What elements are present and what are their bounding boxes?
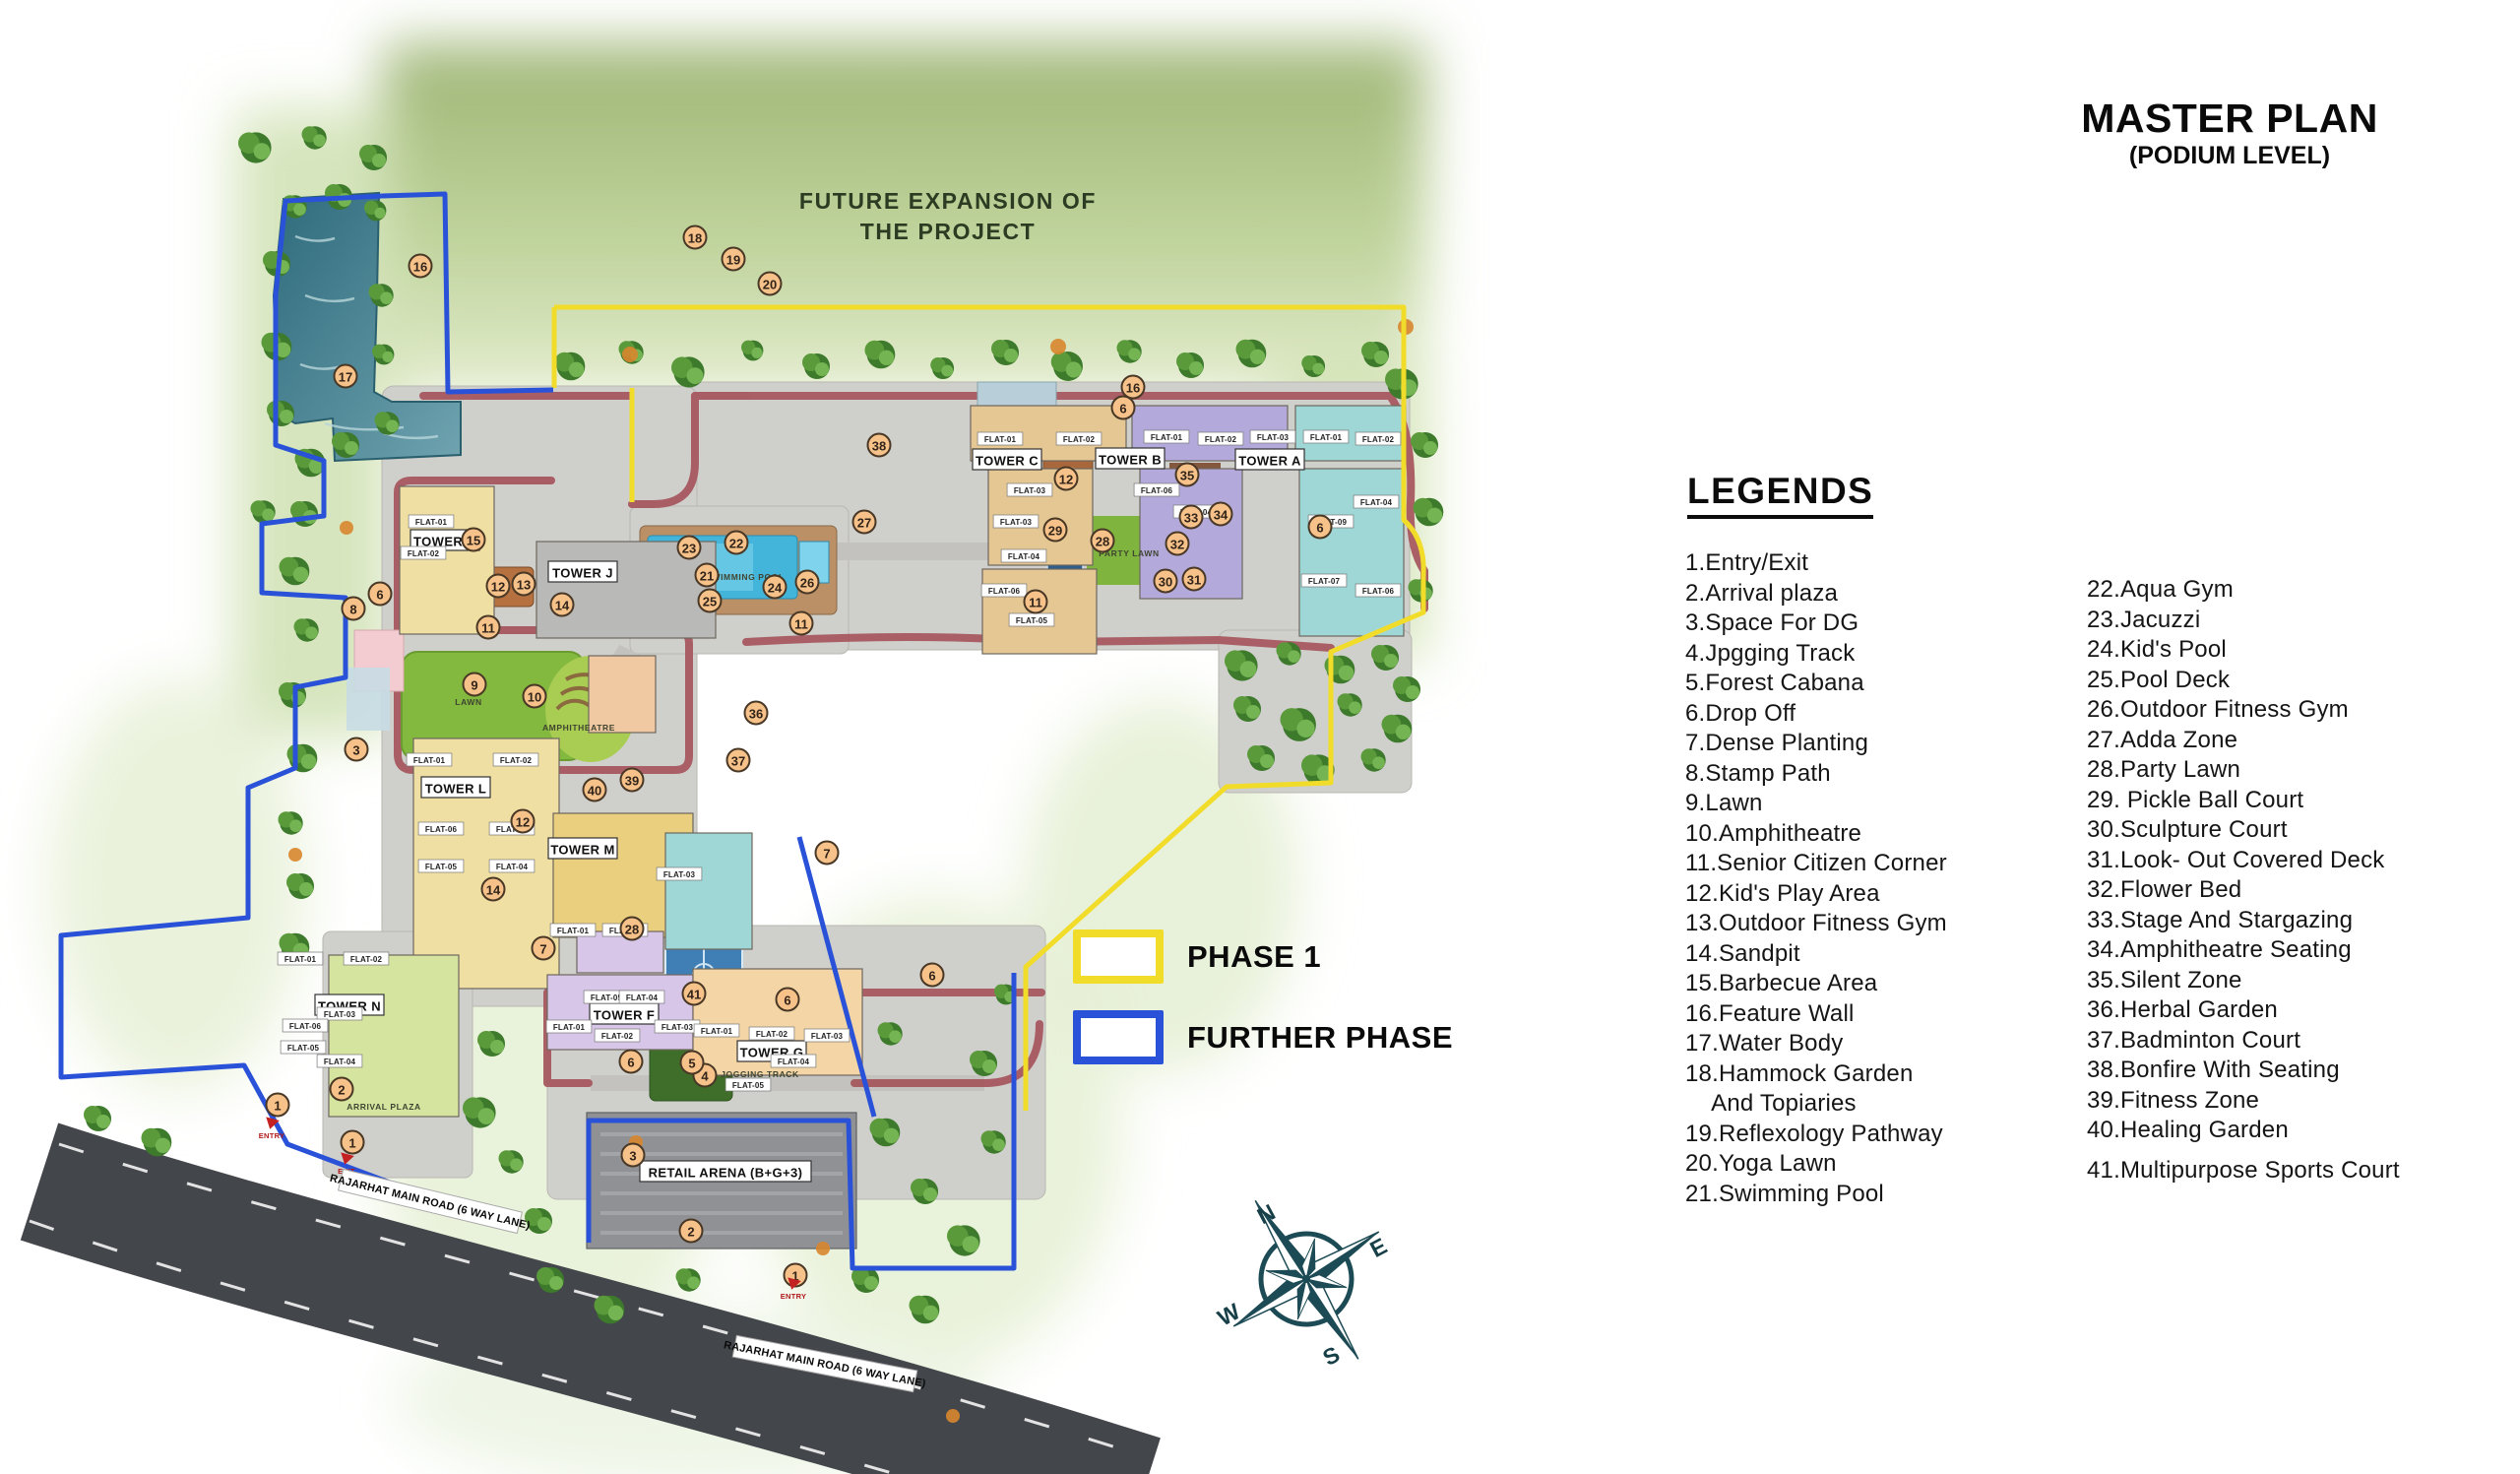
flat-label: FLAT-02	[344, 952, 389, 965]
flat-label: FLAT-02	[1355, 432, 1401, 445]
legend-item: 24.Kid's Pool	[2087, 635, 2520, 666]
tower-building	[589, 656, 656, 733]
legend-item: 31.Look- Out Covered Deck	[2087, 846, 2520, 876]
flat-label-text: FLAT-02	[1063, 435, 1096, 444]
map-marker: 38	[868, 434, 891, 457]
map-marker-number: 12	[516, 815, 530, 830]
flat-label: FLAT-04	[771, 1055, 816, 1067]
map-marker-number: 3	[352, 743, 359, 758]
map-marker-number: 6	[376, 588, 383, 603]
flat-label-text: FLAT-01	[415, 518, 448, 527]
map-marker-number: 9	[471, 678, 477, 693]
map-marker-number: 34	[1214, 508, 1228, 523]
map-marker: 20	[759, 273, 782, 295]
legend-item: 21.Swimming Pool	[1685, 1180, 2099, 1210]
map-marker-number: 27	[857, 516, 871, 531]
entry-exit-label: ENTRY	[259, 1131, 285, 1140]
flat-label-text: FLAT-02	[1362, 435, 1395, 444]
flat-label-text: FLAT-03	[663, 870, 696, 879]
legend-item: 1.Entry/Exit	[1685, 548, 2099, 579]
map-marker-number: 6	[1316, 521, 1323, 536]
entry-exit-label: ENTRY	[781, 1292, 807, 1301]
flat-label-text: FLAT-03	[811, 1032, 844, 1041]
flat-label-text: FLAT-04	[1008, 552, 1040, 561]
map-marker-number: 28	[625, 923, 639, 937]
map-marker: 10	[524, 685, 546, 708]
legend-item: 41.Multipurpose Sports Court	[2087, 1156, 2520, 1186]
compass-letter: E	[1365, 1233, 1391, 1262]
legend-item: 33.Stage And Stargazing	[2087, 906, 2520, 936]
map-marker: 31	[1183, 568, 1206, 591]
legend-item: 2.Arrival plaza	[1685, 579, 2099, 609]
legend-item: 16.Feature Wall	[1685, 999, 2099, 1030]
tower-label-text: TOWER B	[1099, 453, 1162, 468]
legend-item: 28.Party Lawn	[2087, 755, 2520, 786]
seating-area	[346, 668, 390, 731]
map-marker: 19	[723, 248, 745, 271]
map-marker-number: 8	[349, 603, 356, 617]
phase-legend-row: PHASE 1	[1073, 929, 1453, 984]
flat-label: FLAT-01	[407, 753, 452, 766]
legend-item: 5.Forest Cabana	[1685, 669, 2099, 699]
flat-label-text: FLAT-01	[701, 1027, 733, 1036]
flat-label-text: FLAT-01	[1151, 433, 1183, 442]
flat-label-text: FLAT-06	[1141, 486, 1173, 495]
map-marker-number: 3	[629, 1149, 636, 1164]
flat-label-text: FLAT-01	[557, 927, 590, 935]
map-marker-number: 23	[682, 542, 696, 556]
map-marker-number: 7	[539, 942, 546, 957]
legend-item: 17.Water Body	[1685, 1029, 2099, 1059]
legend-item: 32.Flower Bed	[2087, 875, 2520, 906]
flat-label-text: FLAT-01	[553, 1023, 586, 1032]
flat-label-text: FLAT-06	[289, 1022, 322, 1031]
flat-label-text: FLAT-05	[591, 993, 623, 1002]
flat-label: FLAT-07	[1301, 574, 1347, 587]
legend-item: 9.Lawn	[1685, 789, 2099, 819]
map-marker-number: 31	[1187, 573, 1201, 588]
map-marker: 39	[621, 769, 644, 792]
phase-color-box	[1073, 929, 1164, 984]
map-marker-number: 40	[588, 784, 601, 799]
legend-item: 35.Silent Zone	[2087, 966, 2520, 996]
legend-column-2: 22.Aqua Gym23.Jacuzzi24.Kid's Pool25.Poo…	[2087, 575, 2520, 1186]
map-marker: 24	[764, 576, 787, 599]
map-marker: 1	[267, 1094, 289, 1117]
flat-label: FLAT-03	[1250, 430, 1295, 443]
flat-label: FLAT-04	[317, 1055, 362, 1067]
tower-label: TOWER B	[1096, 448, 1165, 469]
map-marker: 11	[1025, 591, 1047, 613]
tower-label: TOWER J	[548, 561, 617, 582]
flat-label-text: FLAT-03	[1257, 433, 1290, 442]
map-marker: 2	[331, 1078, 353, 1101]
map-marker-number: 25	[703, 595, 717, 609]
map-marker: 34	[1210, 503, 1232, 526]
map-marker: 35	[1176, 464, 1199, 486]
map-marker: 6	[921, 964, 944, 987]
legend-item: 20.Yoga Lawn	[1685, 1149, 2099, 1180]
map-marker: 22	[725, 532, 748, 554]
flat-label: FLAT-04	[1354, 495, 1399, 508]
flat-label: FLAT-02	[493, 753, 538, 766]
map-marker-number: 32	[1170, 538, 1184, 552]
legend-item: 18.Hammock Garden	[1685, 1059, 2099, 1090]
map-marker-number: 11	[1029, 596, 1042, 610]
map-marker: 29	[1044, 519, 1067, 542]
flat-label: FLAT-05	[1009, 613, 1054, 626]
map-marker-number: 7	[823, 847, 830, 862]
map-marker: 33	[1180, 506, 1203, 529]
flat-label-text: FLAT-02	[601, 1032, 634, 1041]
legend-item: 12.Kid's Play Area	[1685, 879, 2099, 910]
flat-label: FLAT-03	[1007, 483, 1052, 496]
map-marker: 13	[513, 573, 535, 596]
map-marker: 14	[551, 594, 574, 616]
map-marker: 12	[512, 810, 535, 833]
map-marker: 7	[816, 842, 839, 865]
amenity-label: JOGGING TRACK	[721, 1069, 799, 1079]
map-marker: 3	[622, 1144, 645, 1167]
map-marker: 7	[533, 937, 555, 960]
map-marker-number: 12	[1059, 473, 1073, 487]
map-marker-number: 26	[800, 576, 814, 591]
flat-label-text: FLAT-05	[425, 863, 458, 871]
flat-label: FLAT-01	[1303, 430, 1349, 443]
flat-label: FLAT-01	[278, 952, 323, 965]
flat-label-text: FLAT-03	[1000, 518, 1033, 527]
flat-label: FLAT-05	[281, 1041, 326, 1054]
flat-label: FLAT-03	[657, 867, 702, 880]
legend-item: 30.Sculpture Court	[2087, 815, 2520, 846]
flat-label-text: FLAT-01	[1310, 433, 1343, 442]
flat-label-text: FLAT-05	[1016, 616, 1048, 625]
page-title-main: MASTER PLAN	[2067, 96, 2392, 140]
map-marker-number: 13	[517, 578, 531, 593]
map-marker-number: 21	[700, 569, 714, 584]
flat-label-text: FLAT-02	[756, 1030, 788, 1039]
map-marker: 16	[1122, 376, 1145, 399]
map-marker-number: 17	[339, 370, 352, 385]
map-marker: 36	[745, 702, 768, 725]
legend-item: 38.Bonfire With Seating	[2087, 1056, 2520, 1086]
tower-label-text: TOWER J	[552, 566, 613, 581]
legend-column-1: 1.Entry/Exit2.Arrival plaza3.Space For D…	[1685, 548, 2099, 1209]
legend-item: 26.Outdoor Fitness Gym	[2087, 695, 2520, 726]
map-marker-number: 41	[687, 988, 701, 1002]
legend-item: 25.Pool Deck	[2087, 666, 2520, 696]
map-marker: 21	[696, 564, 719, 587]
master-plan-page: { "page": { "title_line1": "MASTER PLAN"…	[0, 0, 2520, 1474]
map-marker-number: 28	[1096, 535, 1109, 549]
map-marker-number: 6	[1119, 402, 1126, 417]
map-marker-number: 39	[625, 774, 639, 789]
amenity-label: AMPHITHEATRE	[542, 723, 615, 733]
amenity-label: ARRIVAL PLAZA	[346, 1102, 421, 1112]
flat-label: FLAT-01	[550, 924, 596, 936]
flat-label-text: FLAT-03	[661, 1023, 694, 1032]
map-marker-number: 6	[627, 1056, 634, 1070]
map-marker: 6	[369, 583, 392, 606]
flat-label-text: FLAT-04	[324, 1057, 356, 1066]
flat-label: FLAT-03	[317, 1007, 362, 1020]
flat-label: FLAT-04	[619, 991, 664, 1003]
map-marker-number: 16	[1126, 381, 1140, 396]
map-marker: 6	[1112, 397, 1135, 419]
map-marker: 8	[343, 598, 365, 620]
phase-label: FURTHER PHASE	[1187, 1020, 1453, 1056]
tower-label: TOWER C	[973, 449, 1041, 470]
map-marker-number: 6	[928, 969, 935, 984]
map-marker-number: 20	[763, 278, 777, 292]
legend-item: 34.Amphitheatre Seating	[2087, 935, 2520, 966]
map-marker-number: 33	[1184, 511, 1198, 526]
flat-label: FLAT-01	[546, 1020, 592, 1033]
flat-label-text: FLAT-02	[500, 756, 533, 765]
map-marker-number: 5	[688, 1057, 695, 1071]
map-marker: 6	[777, 989, 799, 1011]
map-marker: 40	[584, 779, 606, 801]
map-marker: 15	[463, 529, 485, 551]
map-marker-number: 11	[481, 621, 495, 636]
legend-item: 27.Adda Zone	[2087, 726, 2520, 756]
feature-wall	[977, 382, 1056, 406]
flat-label: FLAT-05	[418, 860, 464, 872]
map-marker: 28	[1092, 530, 1114, 552]
flat-label-text: FLAT-02	[1205, 435, 1237, 444]
map-marker: 18	[684, 226, 707, 249]
legend-item: 14.Sandpit	[1685, 939, 2099, 970]
map-marker-number: 2	[687, 1225, 694, 1240]
phase-legend-row: FURTHER PHASE	[1073, 1010, 1453, 1064]
tower-label-text: TOWER A	[1238, 454, 1301, 469]
flat-label: FLAT-01	[977, 432, 1023, 445]
tower-label-text: TOWER L	[425, 782, 487, 797]
map-marker: 14	[482, 878, 505, 901]
flat-label-text: FLAT-06	[425, 825, 458, 834]
map-marker: 32	[1166, 533, 1189, 555]
legend-item: 15.Barbecue Area	[1685, 969, 2099, 999]
map-marker-number: 1	[348, 1136, 355, 1151]
legend-item: 6.Drop Off	[1685, 699, 2099, 730]
map-marker: 12	[487, 575, 510, 598]
map-marker: 30	[1155, 570, 1177, 593]
compass-letter: W	[1214, 1298, 1245, 1330]
flat-label: FLAT-06	[1134, 483, 1179, 496]
map-marker: 37	[727, 749, 750, 772]
legend-item: 37.Badminton Court	[2087, 1026, 2520, 1057]
tower-label-text: TOWER F	[594, 1008, 656, 1023]
map-marker-number: 1	[274, 1099, 281, 1114]
flat-label-text: FLAT-04	[626, 993, 659, 1002]
phase-color-box	[1073, 1010, 1164, 1064]
tower-label-text: TOWER M	[550, 843, 614, 858]
tower-e-building	[665, 833, 752, 949]
map-marker: 17	[335, 365, 357, 388]
map-marker-number: 11	[794, 617, 808, 632]
flat-label-text: FLAT-05	[287, 1044, 320, 1053]
legend-item: 39.Fitness Zone	[2087, 1086, 2520, 1117]
map-marker: 3	[346, 738, 368, 761]
map-marker: 12	[1055, 468, 1078, 490]
map-marker: 16	[409, 255, 432, 278]
tower-label: TOWER F	[590, 1003, 659, 1024]
map-marker: 6	[1309, 516, 1332, 539]
map-marker-number: 14	[486, 883, 501, 898]
amenity-label: LAWN	[455, 697, 481, 707]
map-marker: 5	[681, 1052, 704, 1074]
legend-item: 13.Outdoor Fitness Gym	[1685, 909, 2099, 939]
flat-label-text: FLAT-04	[496, 863, 529, 871]
flat-label-text: FLAT-04	[1360, 498, 1393, 507]
tower-k-building	[400, 486, 494, 634]
legend-item: 36.Herbal Garden	[2087, 995, 2520, 1026]
flat-label: FLAT-03	[804, 1029, 850, 1042]
map-marker-number: 36	[749, 707, 763, 722]
flat-label-text: FLAT-03	[324, 1010, 356, 1019]
map-marker-number: 29	[1048, 524, 1062, 539]
map-marker-number: 37	[731, 754, 745, 769]
flat-label: FLAT-04	[489, 860, 535, 872]
map-marker-number: 6	[784, 993, 790, 1008]
legend-item: 3.Space For DG	[1685, 609, 2099, 639]
flat-label: FLAT-01	[409, 515, 454, 528]
tower-label-text: RETAIL ARENA (B+G+3)	[649, 1166, 803, 1181]
flat-label-text: FLAT-04	[778, 1057, 810, 1066]
flat-label: FLAT-01	[1144, 430, 1189, 443]
tower-label-text: TOWER C	[976, 454, 1039, 469]
map-marker: 11	[477, 616, 500, 639]
map-marker-number: 15	[467, 534, 480, 548]
flat-label: FLAT-02	[1056, 432, 1102, 445]
phase-legend: PHASE 1FURTHER PHASE	[1073, 929, 1453, 1091]
flat-label: FLAT-06	[1355, 584, 1401, 597]
future-expansion-label: FUTURE EXPANSION OF	[799, 188, 1097, 214]
flat-label-text: FLAT-01	[284, 955, 317, 964]
map-marker: 2	[680, 1220, 703, 1243]
flat-label: FLAT-04	[1001, 549, 1046, 562]
map-marker: 41	[683, 983, 706, 1005]
compass-rose	[1182, 1153, 1430, 1406]
map-marker-number: 16	[413, 260, 427, 275]
map-marker: 9	[464, 673, 486, 696]
map-marker-number: 22	[729, 537, 743, 551]
flat-label: FLAT-02	[749, 1027, 794, 1040]
map-marker: 11	[790, 612, 813, 635]
flat-label: FLAT-03	[993, 515, 1039, 528]
flat-label: FLAT-02	[595, 1029, 640, 1042]
flat-label-text: FLAT-07	[1308, 577, 1341, 586]
map-marker: 23	[678, 537, 701, 559]
flat-label-text: FLAT-05	[732, 1081, 765, 1090]
map-marker: 25	[699, 590, 722, 612]
legend-item: 4.Jpgging Track	[1685, 639, 2099, 670]
page-title-sub: (PODIUM LEVEL)	[2067, 142, 2392, 170]
legend-item: And Topiaries	[1685, 1089, 2099, 1120]
flat-label: FLAT-03	[655, 1020, 700, 1033]
flat-label: FLAT-06	[981, 584, 1027, 597]
tower-label: TOWER A	[1235, 449, 1304, 470]
flat-label-text: FLAT-03	[1014, 486, 1046, 495]
map-marker-number: 2	[338, 1083, 345, 1098]
map-marker-number: 19	[726, 253, 740, 268]
map-marker-number: 35	[1180, 469, 1194, 483]
legend-item: 23.Jacuzzi	[2087, 606, 2520, 636]
flat-label: FLAT-06	[418, 822, 464, 835]
legend-item: 22.Aqua Gym	[2087, 575, 2520, 606]
map-marker-number: 18	[688, 231, 702, 246]
flat-label: FLAT-02	[401, 546, 446, 559]
legend-item: 19.Reflexology Pathway	[1685, 1120, 2099, 1150]
flat-label-text: FLAT-02	[408, 549, 440, 558]
map-marker-number: 14	[555, 599, 570, 613]
map-marker: 28	[621, 918, 644, 940]
map-marker-number: 12	[491, 580, 505, 595]
legend-item: 11.Senior Citizen Corner	[1685, 849, 2099, 879]
flat-label-text: FLAT-01	[984, 435, 1017, 444]
compass-letter: S	[1318, 1341, 1344, 1371]
flat-label: FLAT-06	[283, 1019, 328, 1032]
map-marker: 26	[796, 571, 819, 594]
flat-label-text: FLAT-02	[350, 955, 383, 964]
map-marker-number: 38	[872, 439, 886, 454]
legends-heading: LEGENDS	[1687, 471, 1873, 519]
flat-label-text: FLAT-06	[1362, 587, 1395, 596]
page-title: MASTER PLAN (PODIUM LEVEL)	[2067, 96, 2392, 170]
map-marker-number: 10	[528, 690, 541, 705]
tower-label: TOWER L	[421, 777, 490, 798]
legend-item: 8.Stamp Path	[1685, 759, 2099, 790]
legend-item: 40.Healing Garden	[2087, 1116, 2520, 1146]
legend-item: 29. Pickle Ball Court	[2087, 786, 2520, 816]
flat-label-text: FLAT-01	[413, 756, 446, 765]
flat-label: FLAT-02	[1198, 432, 1243, 445]
flat-label-text: FLAT-06	[988, 587, 1021, 596]
map-marker: 6	[620, 1051, 643, 1073]
legend-item: 10.Amphitheatre	[1685, 819, 2099, 850]
legend-item: 7.Dense Planting	[1685, 729, 2099, 759]
flat-label: FLAT-01	[694, 1024, 739, 1037]
tower-label: RETAIL ARENA (B+G+3)	[640, 1161, 811, 1182]
future-expansion-label: THE PROJECT	[860, 219, 1037, 244]
map-marker-number: 4	[701, 1069, 709, 1084]
flat-label: FLAT-05	[725, 1078, 771, 1091]
tower-label: TOWER M	[548, 838, 617, 859]
map-marker-number: 30	[1159, 575, 1172, 590]
map-marker: 27	[853, 511, 876, 534]
map-marker-number: 24	[768, 581, 783, 596]
phase-label: PHASE 1	[1187, 939, 1321, 975]
map-marker: 1	[342, 1131, 364, 1154]
